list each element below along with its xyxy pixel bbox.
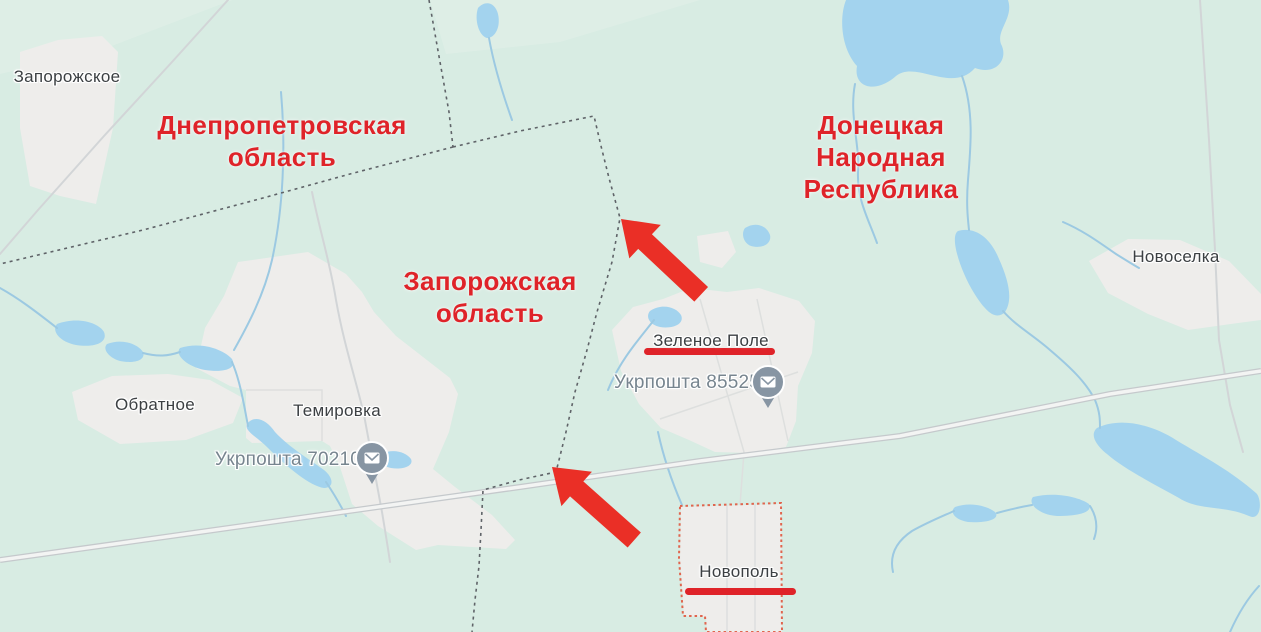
region-label-donetsk-peoples-republic: Донецкая Народная Республика (804, 109, 959, 205)
mail-pin-icon[interactable] (750, 364, 786, 410)
stream (489, 38, 512, 120)
water-lake (842, 0, 1009, 87)
map-canvas[interactable]: Запорожское Новоселка Обратное Темировка… (0, 0, 1261, 632)
road-minor (740, 452, 744, 505)
stream (962, 76, 971, 230)
poi-label-ukrposhta-85525[interactable]: Укрпошта 85525 (614, 372, 760, 394)
place-label-novopol[interactable]: Новополь (699, 562, 779, 582)
water-reservoir (1094, 423, 1260, 517)
place-label-temirovka[interactable]: Темировка (293, 401, 381, 421)
region-label-zaporizhzhia-oblast: Запорожская область (403, 265, 576, 329)
stream (997, 505, 1032, 513)
stream (1090, 506, 1096, 539)
map-features-layer (0, 0, 1261, 632)
region-label-dnipropetrovsk-oblast: Днепропетровская область (157, 109, 406, 173)
water-pond (743, 225, 770, 247)
water-pond (955, 230, 1009, 316)
settlement-patch (697, 231, 736, 268)
place-label-novoselka[interactable]: Новоселка (1132, 247, 1219, 267)
road-minor (1200, 0, 1243, 452)
mail-pin-icon[interactable] (354, 440, 390, 486)
arrow-annotation-icon (537, 450, 650, 557)
field-patch (430, 0, 700, 54)
boundary-zaporizhzhia-donetsk (453, 116, 620, 632)
water-pond (105, 342, 143, 362)
place-label-zaporozhskoe[interactable]: Запорожское (14, 67, 121, 87)
stream (1230, 586, 1259, 632)
water-pond (953, 505, 997, 523)
poi-label-ukrposhta-70210[interactable]: Укрпошта 70210 (215, 449, 361, 471)
stream (0, 288, 57, 328)
place-label-zelenoe-pole[interactable]: Зеленое Поле (653, 331, 769, 351)
place-label-obratnoe[interactable]: Обратное (115, 395, 195, 415)
stream (892, 511, 954, 572)
stream (143, 352, 180, 356)
novopol-underline (685, 588, 796, 595)
water-pond (55, 320, 105, 345)
settlement-zaporozhskoe (20, 36, 118, 204)
water-pond (1032, 495, 1090, 516)
